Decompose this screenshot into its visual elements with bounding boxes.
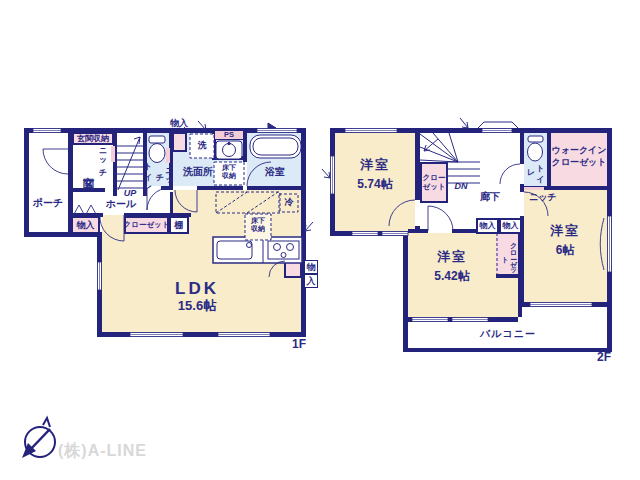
storage-right-char1: 物 [307,262,316,272]
wall [403,231,408,352]
niche-strip [111,146,115,162]
room1-size-label: 5.74帖 [345,178,405,192]
wall [170,192,173,213]
storage-top-box [172,132,187,152]
storage-b-label: 物入 [503,221,519,230]
floor1-label: 1F [286,338,312,352]
wic-label-line1: ウォークイン [549,145,609,155]
door-opening [520,192,524,216]
niche-b-label: ニッチ [155,158,173,188]
wall [73,188,105,192]
storage-a-box: 物入 [476,218,499,234]
genkan-label: 玄関 [82,150,95,188]
storage-right-label-box: 入 [304,274,318,288]
wall [247,186,306,190]
washroom-label: 洗面所 [180,166,216,178]
ps-label: PS [224,131,234,140]
toilet-2f-label: トイレ [526,154,544,184]
storage-right-char2: 入 [307,276,316,286]
ldk-size-label: 15.6帖 [161,299,233,314]
niche-2f-label: ニッチ [527,192,559,202]
storage-right-label-box: 物 [304,260,318,274]
storage-corner-label: 物入 [77,220,95,230]
room1-label: 洋室 [345,158,405,173]
balcony-label: バルコニー [478,328,538,340]
corridor-label: 廊下 [474,191,506,203]
wall [97,232,102,337]
wall [24,128,29,237]
room-porch [29,133,68,232]
shelf-label: 棚 [175,220,184,230]
floorplan-image: 玄関収納 PS 物入 クローゼット 棚 物 入 クローゼット 物入 物入 [0,0,640,480]
storage-corner-box: 物入 [71,216,100,234]
door-opening [415,200,420,226]
wall [403,348,612,352]
wall [403,317,518,322]
niche-strip [524,187,544,190]
wall [518,302,612,307]
closet-label-2f: クローゼット [422,174,446,191]
wall [24,128,73,133]
closet-label-1f: クローゼット [124,221,170,230]
toilet-1f-label: トイレ [143,156,152,188]
room2-size-label: 5.42帖 [422,270,482,284]
wall [97,332,306,337]
room3-label: 洋室 [535,224,595,239]
floor2-label: 2F [591,351,617,365]
ps-box: PS [214,130,244,140]
wall [330,128,612,133]
genkan-storage-box: 玄関収納 [72,132,114,145]
storage-right-box [284,260,302,278]
bath-label: 浴室 [261,166,289,178]
room-stairs-1f [116,133,143,196]
door-opening [520,164,524,184]
wall [301,128,306,337]
niche-a-label: ニッチ [98,142,107,174]
up-label: UP [116,188,144,198]
room3-size-label: 6帖 [535,244,595,258]
compass-icon [22,418,55,458]
porch-label: ポーチ [28,197,68,209]
wall [197,186,243,190]
room2-label: 洋室 [422,250,482,265]
room-bath [247,133,301,186]
dn-label: DN [448,181,474,191]
shelf-box: 棚 [169,216,189,234]
storage-top-label: 物入 [164,118,194,128]
company-name: (株)A-LINE [58,441,147,462]
underfloor-b-label: 床下収納 [250,217,266,233]
storage-a-label: 物入 [480,221,496,230]
closet-box-2f: クローゼット [420,162,448,203]
fridge-label: 冷 [282,197,296,207]
closet-box-1f: クローゼット [124,216,169,234]
wall [330,231,408,236]
ldk-label: LDK [161,279,233,299]
wic-label-line2: クローゼット [549,157,609,167]
washer-label: 洗 [196,140,208,150]
wall [408,229,428,233]
hall-label: ホール [101,198,141,210]
closet-between-label: クローゼット [499,236,517,274]
storage-b-box: 物入 [499,218,522,234]
underfloor-a-label: 床下収納 [221,164,237,180]
wall [330,128,335,236]
wall [212,156,245,160]
